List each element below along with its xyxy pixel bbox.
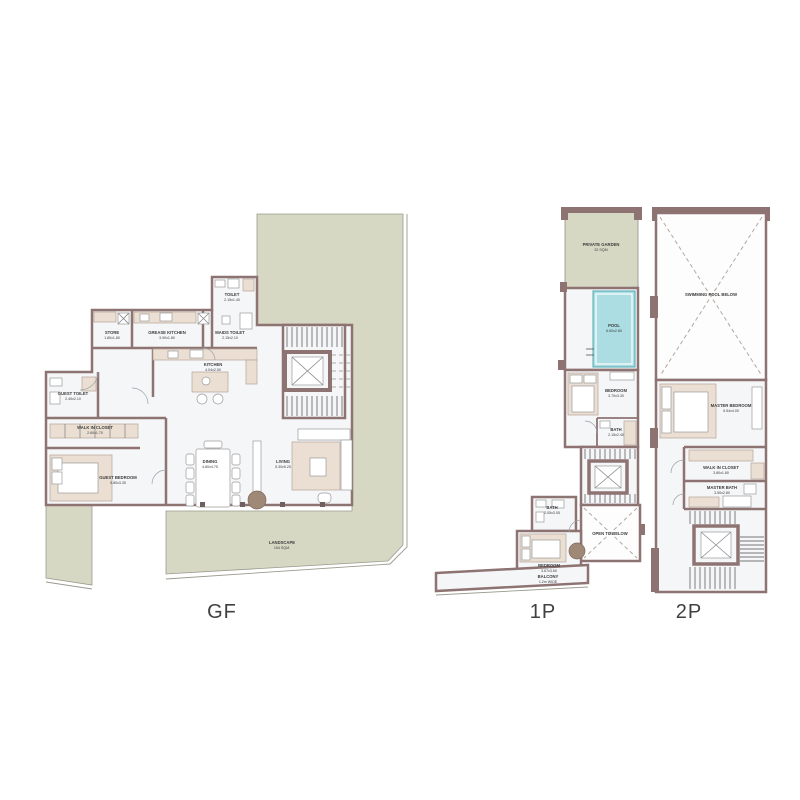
p1-bath-sink bbox=[600, 421, 610, 428]
p1-wing-pillow-2 bbox=[522, 549, 530, 560]
gf-label-walk-in-closet: WALK IN CLOSET bbox=[77, 425, 113, 430]
p2-stub-bed bbox=[650, 428, 658, 448]
p1-label-wing-bath: BATH bbox=[546, 505, 557, 510]
gf-dim-store: 1.80x1.80 bbox=[104, 336, 120, 340]
gf-grease-sink bbox=[140, 314, 149, 321]
p1-bed-sheet bbox=[572, 386, 594, 412]
gf-label-grease-kitchen: GREASE KITCHEN bbox=[148, 330, 185, 335]
gf-armchair bbox=[318, 493, 331, 503]
gf-label-landscape: LANDSCAPE bbox=[269, 540, 295, 545]
gf-dim-maids-toilet: 2.15x2.10 bbox=[222, 336, 238, 340]
gf-kitchen-stove bbox=[190, 350, 203, 358]
gf-maids-shower bbox=[240, 313, 252, 329]
gf-label-dining: DINING bbox=[203, 459, 218, 464]
gf-sofa-right bbox=[341, 440, 352, 490]
p1-bed-pillow-1 bbox=[570, 375, 582, 383]
p2-closet-wardrobe-right bbox=[751, 463, 764, 479]
p2-bath-wc bbox=[744, 484, 756, 494]
p1-bath-tub bbox=[624, 421, 636, 445]
p1-top-wall bbox=[561, 207, 642, 213]
gf-dim-grease-kitchen: 3.90x1.80 bbox=[159, 336, 175, 340]
p2-bath-counter bbox=[689, 497, 719, 507]
gf-toilet-shower bbox=[243, 279, 254, 291]
p2-master-pillow-2 bbox=[662, 411, 671, 433]
p1-balcony bbox=[436, 565, 588, 591]
p1-dim-wing-bedroom: 3.67x3.60 bbox=[541, 569, 557, 573]
p1-title: 1P bbox=[530, 601, 556, 623]
gf-island-sink bbox=[202, 377, 210, 385]
p2-bath-tub bbox=[723, 496, 751, 507]
p2-master-pillow-1 bbox=[662, 387, 671, 409]
gf-guest-bed-sheet bbox=[58, 463, 98, 493]
gf-dim-kitchen: 4.04x2.50 bbox=[205, 368, 221, 372]
p2-dim-walk-in-closet: 3.80x1.80 bbox=[713, 471, 729, 475]
p2-plan: SWIMMING POOL BELOW MASTER BEDROOM 5.54x… bbox=[650, 207, 770, 623]
gf-coffee-table bbox=[310, 458, 326, 476]
floorplan-sheet: TOILET 2.15x1.40 STORE 1.80x1.80 GREASE … bbox=[0, 0, 800, 800]
gf-label-toilet: TOILET bbox=[225, 292, 240, 297]
p1-stub-2 bbox=[558, 360, 566, 370]
gf-dim-toilet: 2.15x1.40 bbox=[224, 298, 240, 302]
gf-landscape-left-strip bbox=[46, 505, 92, 585]
gf-dining-table bbox=[196, 449, 230, 507]
p1-label-open-to-below: OPEN TO BELOW bbox=[592, 531, 628, 536]
p1-dim-bedroom: 3.70x3.30 bbox=[608, 394, 624, 398]
p2-master-bed-sheet bbox=[674, 392, 708, 432]
p2-closet-wardrobe-top bbox=[689, 450, 753, 461]
p2-stub-low bbox=[651, 548, 659, 592]
gf-label-guest-bedroom: GUEST BEDROOM bbox=[99, 475, 137, 480]
p1-planter bbox=[569, 543, 585, 559]
gf-dim-guest-toilet: 2.40x2.10 bbox=[65, 397, 81, 401]
gf-grease-stove bbox=[160, 313, 172, 321]
p1-stub-1 bbox=[560, 282, 567, 292]
p2-label-walk-in-closet: WALK IN CLOSET bbox=[703, 465, 739, 470]
gf-toilet-wc bbox=[228, 279, 239, 288]
p1-bed-pillow-2 bbox=[584, 375, 596, 383]
gf-plan: TOILET 2.15x1.40 STORE 1.80x1.80 GREASE … bbox=[46, 214, 407, 623]
gf-guest-pillow-2 bbox=[52, 472, 62, 484]
gf-guest-pillow-1 bbox=[52, 458, 62, 470]
p1-label-garden: PRIVATE GARDEN bbox=[583, 242, 620, 247]
gf-dim-dining: 4.80x4.75 bbox=[202, 465, 218, 469]
gf-title: GF bbox=[207, 601, 237, 623]
p1-top-stub-l bbox=[561, 207, 568, 220]
gf-stool-1 bbox=[197, 394, 207, 404]
p1-wardrobe bbox=[610, 372, 634, 380]
p2-dim-master-bedroom: 5.54x4.00 bbox=[723, 409, 739, 413]
floorplan-canvas: TOILET 2.15x1.40 STORE 1.80x1.80 GREASE … bbox=[0, 0, 800, 800]
p1-wing-bed-sheet bbox=[532, 540, 560, 558]
gf-store-shelf bbox=[94, 312, 116, 322]
gf-guest-toilet-shower bbox=[82, 377, 96, 391]
gf-label-maids-toilet: MAIDS TOILET bbox=[215, 330, 245, 335]
p1-dim-wing-bath: 2.05x3.05 bbox=[544, 511, 560, 515]
p1-label-pool: POOL bbox=[608, 323, 620, 328]
p2-master-wardrobe bbox=[752, 387, 762, 429]
gf-kitchen-counter-right bbox=[246, 360, 257, 384]
p1-plan: PRIVATE GARDEN 32 SQM POOL 6.60x2.80 BED… bbox=[436, 207, 645, 623]
p1-label-balcony: BALCONY bbox=[538, 574, 559, 579]
gf-maids-wc bbox=[222, 316, 230, 324]
p1-top-stub-r bbox=[634, 207, 642, 220]
p1-dim-bath: 2.15x2.40 bbox=[608, 433, 624, 437]
gf-label-store: STORE bbox=[105, 330, 120, 335]
p1-dim-garden: 32 SQM bbox=[594, 248, 607, 252]
gf-sofa-top bbox=[298, 429, 350, 440]
p2-title: 2P bbox=[676, 601, 702, 623]
p2-label-master-bath: MASTER BATH bbox=[707, 485, 737, 490]
p2-label-master-bedroom: MASTER BEDROOM bbox=[711, 403, 752, 408]
p2-dim-master-bath: 3.50x2.80 bbox=[714, 491, 730, 495]
gf-dim-landscape: 154 SQM. bbox=[274, 546, 290, 550]
p1-label-bedroom: BEDROOM bbox=[605, 388, 627, 393]
gf-label-guest-toilet: GUEST TOILET bbox=[58, 391, 89, 396]
p1-label-bath: BATH bbox=[610, 427, 621, 432]
p2-stub-mid bbox=[650, 296, 658, 318]
gf-guest-toilet-sink bbox=[50, 378, 62, 386]
gf-dim-living: 5.30x5.25 bbox=[275, 465, 291, 469]
gf-media-divider bbox=[253, 441, 261, 493]
p1-wing-bath-sink bbox=[536, 500, 546, 507]
gf-kitchen-sink bbox=[168, 351, 178, 358]
gf-label-living: LIVING bbox=[276, 459, 290, 464]
p1-otb-stub bbox=[640, 524, 645, 535]
gf-label-kitchen: KITCHEN bbox=[204, 362, 223, 367]
gf-toilet-sink bbox=[215, 280, 225, 287]
p1-dim-balcony: 1.2m WIDE bbox=[539, 580, 558, 584]
p1-label-wing-bedroom: BEDROOM bbox=[538, 563, 560, 568]
p1-dim-pool: 6.60x2.80 bbox=[606, 329, 622, 333]
gf-dim-walk-in-closet: 2.60x1.70 bbox=[87, 431, 103, 435]
p2-label-pool-below: SWIMMING POOL BELOW bbox=[685, 292, 737, 297]
gf-stool-2 bbox=[213, 394, 223, 404]
p1-wing-pillow-1 bbox=[522, 536, 530, 547]
gf-dim-guest-bedroom: 5.80x3.35 bbox=[110, 481, 126, 485]
p1-wing-bath-wc bbox=[536, 512, 544, 522]
gf-planter bbox=[248, 491, 266, 509]
